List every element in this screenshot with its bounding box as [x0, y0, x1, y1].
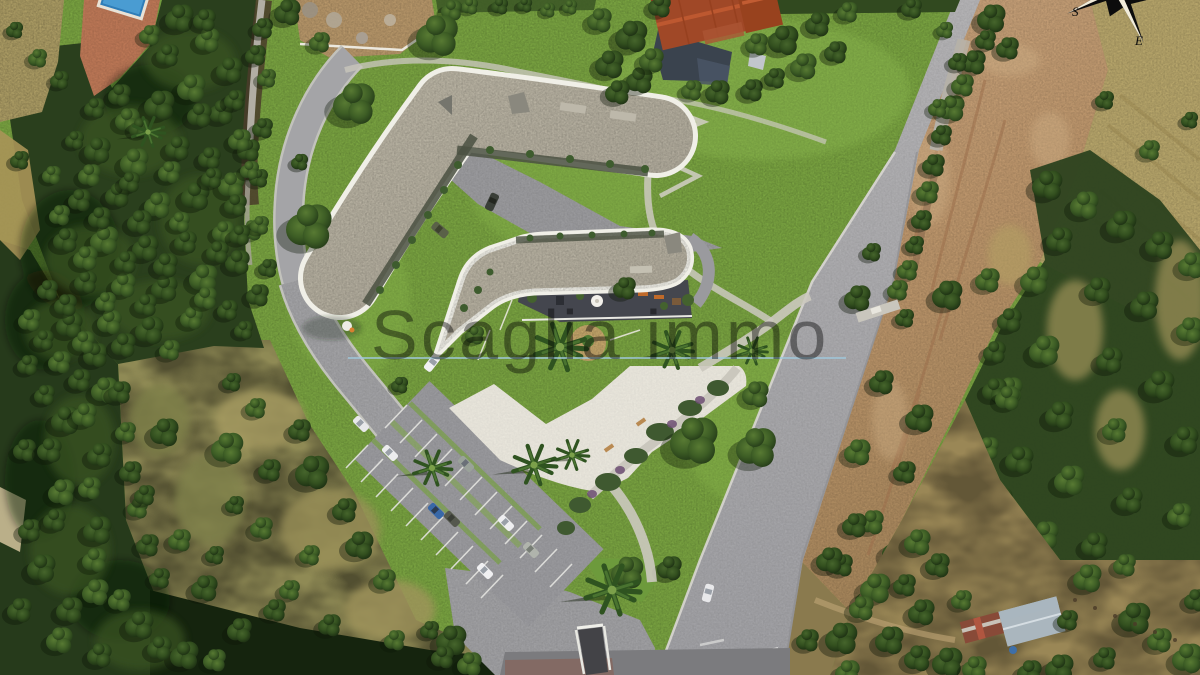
svg-text:E: E [1134, 33, 1143, 48]
svg-text:S: S [1072, 4, 1079, 19]
svg-text:Scaglia immo: Scaglia immo [371, 296, 830, 374]
